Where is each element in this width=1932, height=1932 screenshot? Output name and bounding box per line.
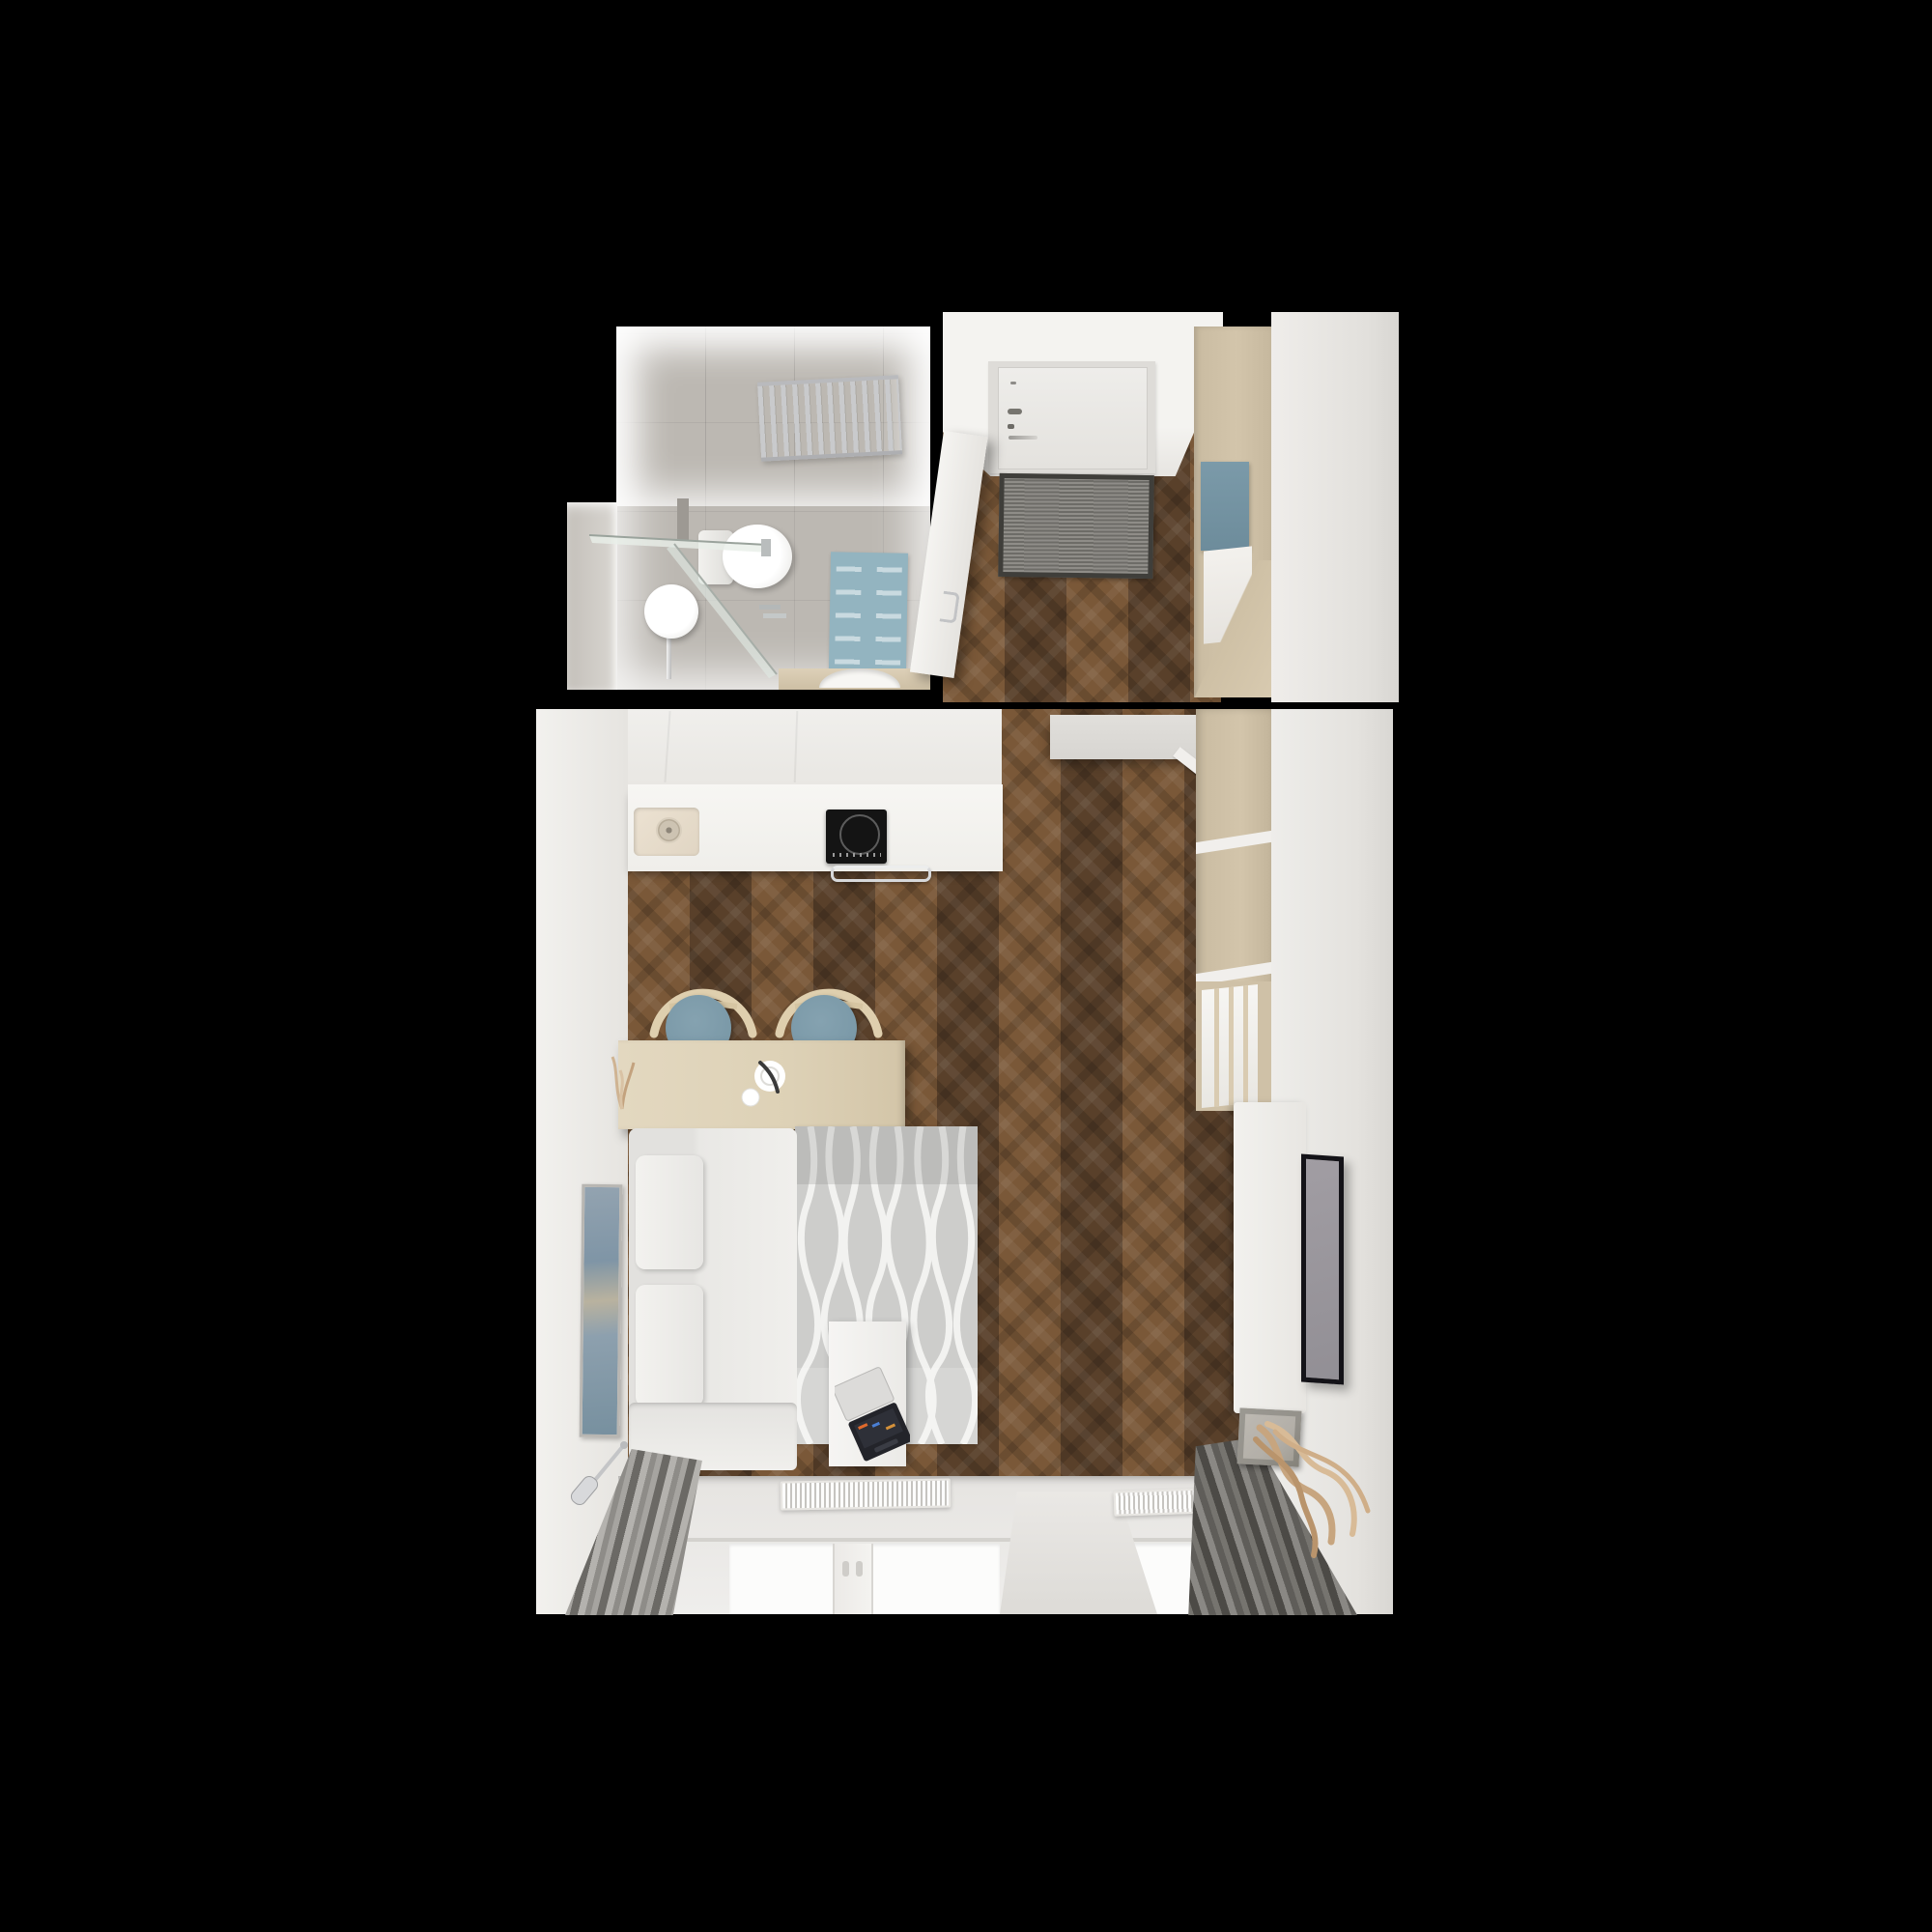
- cooktop-ring: [839, 814, 880, 855]
- entry-door: [998, 367, 1148, 469]
- hallway-right-wall: [1271, 312, 1399, 702]
- induction-cooktop: [826, 810, 887, 864]
- window-mullion: [833, 1544, 873, 1614]
- open-shelf-unit: [1196, 981, 1271, 1111]
- interior-door-handle: [939, 591, 959, 624]
- door-peephole: [1010, 382, 1016, 384]
- sink-drain: [656, 817, 682, 843]
- tv-cabinet: [1234, 1102, 1306, 1413]
- dried-plant-decor: [605, 1051, 638, 1115]
- kitchen-wall-band: [628, 709, 1002, 784]
- plate-and-cup: [729, 1053, 797, 1113]
- cooktop-controls: [833, 853, 881, 857]
- oven-handle: [831, 866, 931, 882]
- radiator-left: [781, 1478, 951, 1510]
- wall-art: [580, 1184, 623, 1437]
- door-lock: [1008, 409, 1022, 414]
- door-keyhole: [1008, 424, 1014, 429]
- doormat: [998, 473, 1153, 579]
- bench-cushion: [1201, 462, 1249, 551]
- sofa-back-cushion: [636, 1155, 703, 1269]
- tv-screen: [1301, 1153, 1344, 1384]
- shelf-compartments: [1202, 984, 1258, 1108]
- driftwood-branches: [1246, 1418, 1377, 1568]
- sofa-back-cushion: [636, 1285, 703, 1406]
- door-handle: [1009, 436, 1037, 440]
- bath-mat: [829, 552, 908, 670]
- wardrobe-side-panel: [1191, 560, 1272, 697]
- towel-radiator: [757, 375, 902, 462]
- round-basin: [644, 584, 698, 639]
- laptop: [835, 1364, 910, 1464]
- apartment-floor-plan-render: [0, 0, 1932, 1932]
- basin-pedestal: [667, 633, 671, 679]
